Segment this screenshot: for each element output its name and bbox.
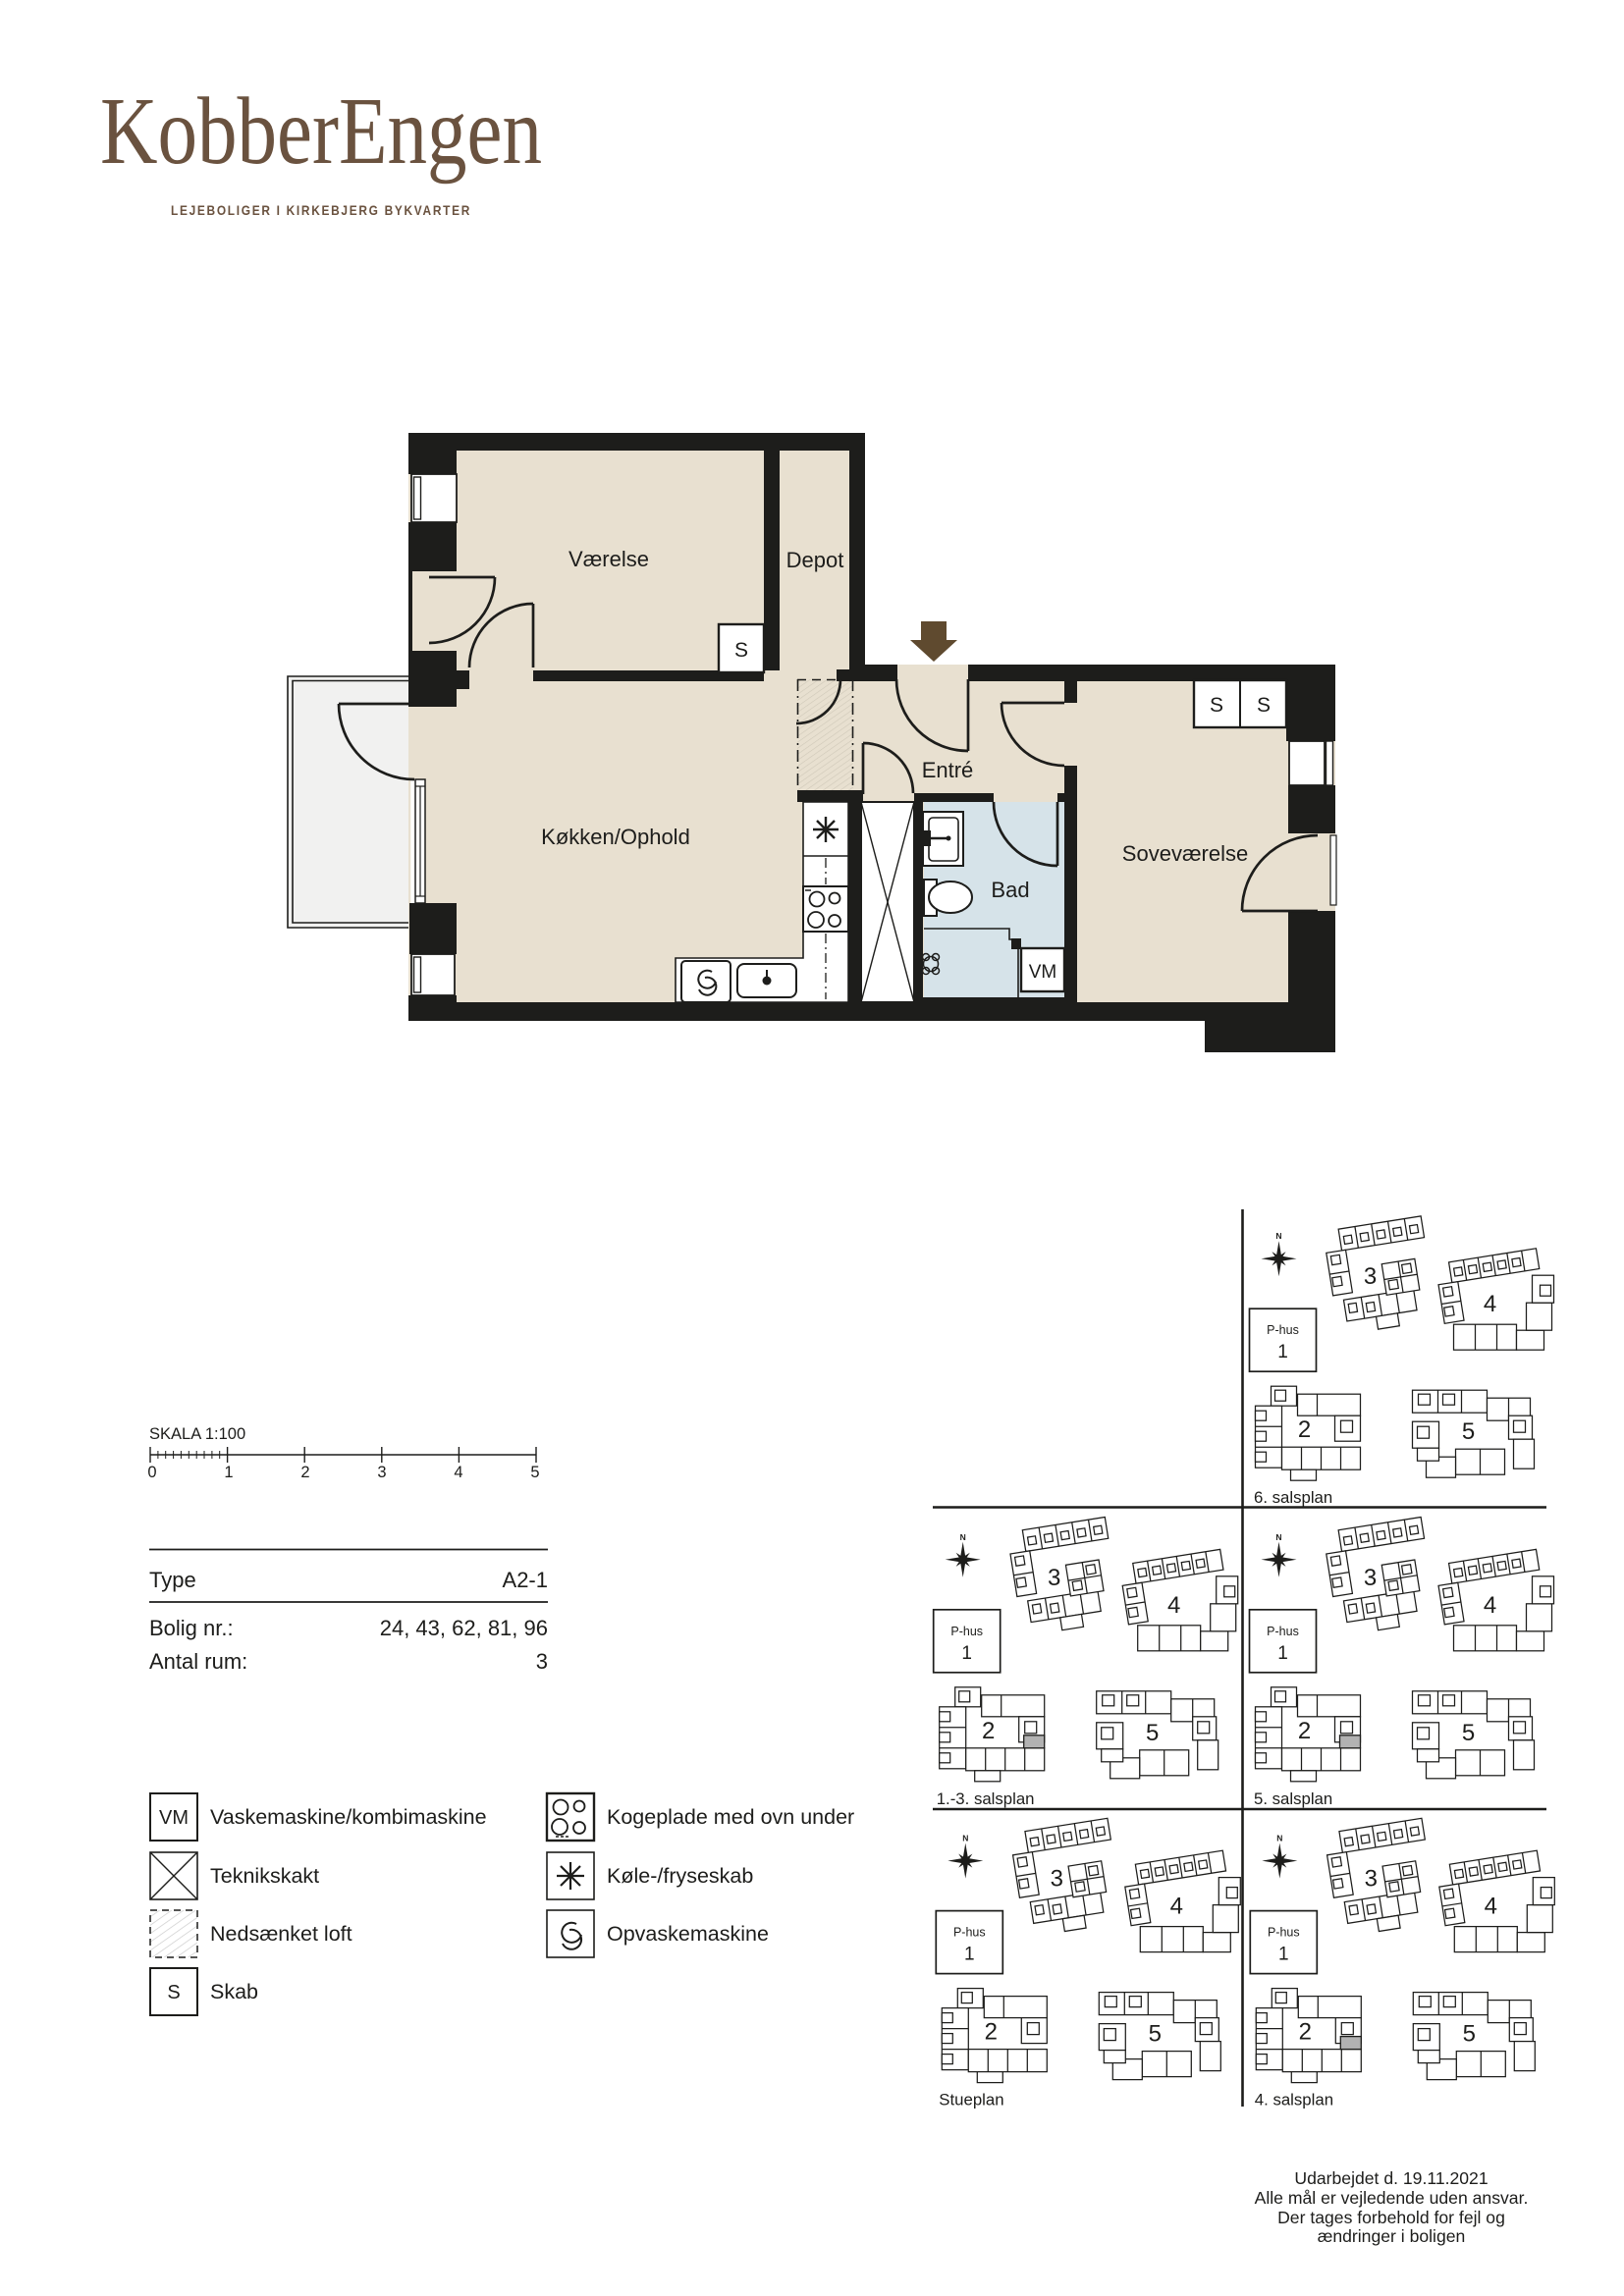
- svg-text:Der tages forbehold for fejl o: Der tages forbehold for fejl og: [1277, 2208, 1505, 2227]
- svg-text:Værelse: Værelse: [568, 547, 649, 571]
- svg-text:Stueplan: Stueplan: [939, 2091, 1003, 2109]
- svg-text:0: 0: [147, 1464, 156, 1481]
- svg-text:ændringer i boligen: ændringer i boligen: [1318, 2226, 1466, 2246]
- svg-text:3: 3: [377, 1464, 386, 1481]
- svg-text:Skab: Skab: [210, 1980, 258, 2003]
- svg-text:6. salsplan: 6. salsplan: [1254, 1488, 1332, 1507]
- svg-text:4: 4: [454, 1464, 462, 1481]
- svg-text:Vaskemaskine/kombimaskine: Vaskemaskine/kombimaskine: [210, 1805, 487, 1829]
- svg-text:Soveværelse: Soveværelse: [1122, 841, 1248, 866]
- svg-text:1.-3. salsplan: 1.-3. salsplan: [937, 1789, 1035, 1808]
- svg-text:4. salsplan: 4. salsplan: [1255, 2091, 1333, 2109]
- svg-text:Udarbejdet d. 19.11.2021: Udarbejdet d. 19.11.2021: [1294, 2168, 1488, 2188]
- svg-text:S: S: [1210, 694, 1223, 717]
- svg-text:Depot: Depot: [786, 548, 844, 572]
- svg-text:3: 3: [536, 1649, 548, 1674]
- svg-text:5. salsplan: 5. salsplan: [1254, 1789, 1332, 1808]
- svg-text:5: 5: [530, 1464, 539, 1481]
- svg-text:Entré: Entré: [922, 758, 974, 782]
- svg-text:Bad: Bad: [991, 878, 1029, 902]
- svg-text:VM: VM: [1029, 962, 1057, 983]
- svg-text:24, 43, 62, 81, 96: 24, 43, 62, 81, 96: [380, 1616, 548, 1640]
- svg-text:Køle-/fryseskab: Køle-/fryseskab: [607, 1864, 753, 1888]
- svg-text:Alle mål er vejledende uden an: Alle mål er vejledende uden ansvar.: [1255, 2188, 1529, 2208]
- svg-text:KobberEngen: KobberEngen: [100, 79, 542, 184]
- svg-text:Nedsænket loft: Nedsænket loft: [210, 1922, 352, 1946]
- svg-text:1: 1: [224, 1464, 233, 1481]
- svg-text:S: S: [1257, 694, 1271, 717]
- svg-text:Teknikskakt: Teknikskakt: [210, 1864, 319, 1888]
- svg-text:A2-1: A2-1: [503, 1568, 548, 1592]
- svg-text:SKALA 1:100: SKALA 1:100: [149, 1425, 245, 1443]
- svg-text:Opvaskemaskine: Opvaskemaskine: [607, 1922, 769, 1946]
- svg-text:Køkken/Ophold: Køkken/Ophold: [541, 825, 690, 849]
- svg-text:Type: Type: [149, 1568, 196, 1592]
- svg-text:LEJEBOLIGER I KIRKEBJERG BYKVA: LEJEBOLIGER I KIRKEBJERG BYKVARTER: [171, 202, 471, 218]
- svg-text:Antal rum:: Antal rum:: [149, 1649, 247, 1674]
- svg-text:2: 2: [300, 1464, 309, 1481]
- svg-text:S: S: [167, 1982, 180, 2003]
- svg-text:Kogeplade med ovn under: Kogeplade med ovn under: [607, 1805, 854, 1829]
- svg-text:S: S: [734, 639, 748, 662]
- svg-text:Bolig nr.:: Bolig nr.:: [149, 1616, 234, 1640]
- svg-text:VM: VM: [159, 1807, 189, 1829]
